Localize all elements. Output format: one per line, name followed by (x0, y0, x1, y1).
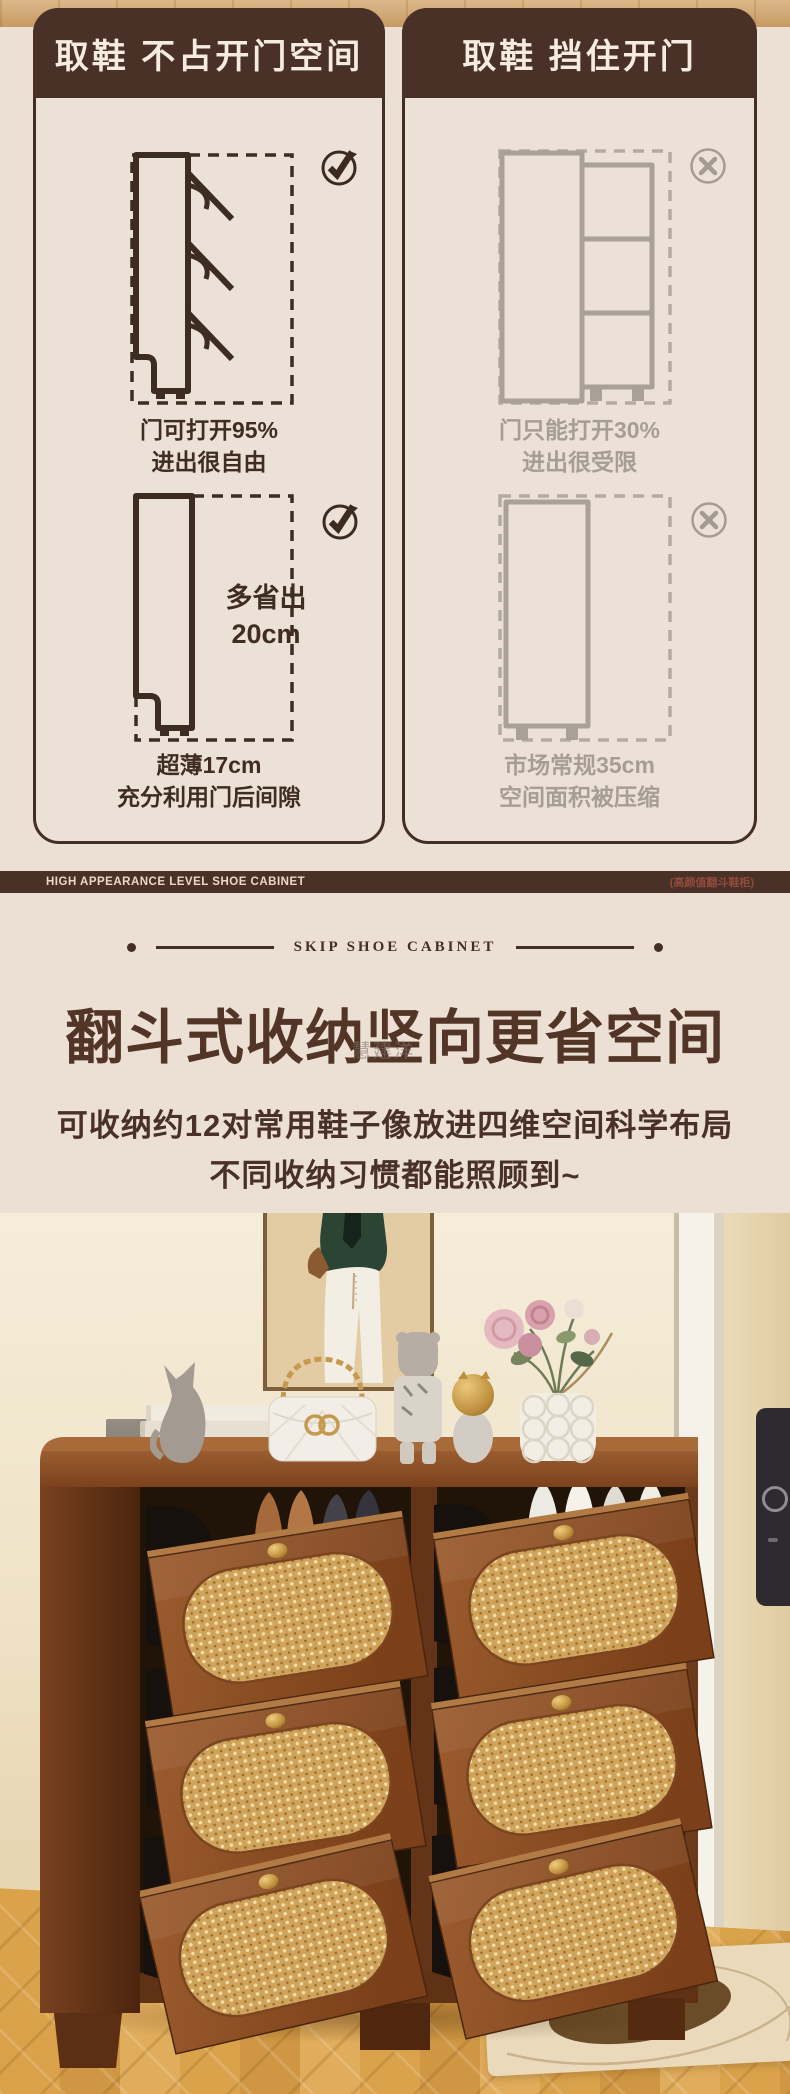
check-icon (318, 498, 362, 542)
caption-market-35cm: 市场常规35cm 空间面积被压缩 (405, 750, 754, 813)
robot-figurine (390, 1330, 446, 1470)
watermark-text: 慧建洋 (352, 1036, 415, 1063)
dot-ornament (654, 943, 663, 952)
line-ornament (156, 946, 274, 949)
subtitle-line1: 可收纳约12对常用鞋子像放进四维空间科学布局 (0, 1100, 790, 1145)
banner-chinese-text: (高颜值翻斗鞋柜) (670, 874, 754, 890)
product-detail-page: 取鞋 不占开门空间 门可打开95% 进出很自由 (0, 0, 790, 2094)
caption-open-95: 门可打开95% 进出很自由 (36, 415, 382, 478)
comparison-panel-good: 取鞋 不占开门空间 门可打开95% 进出很自由 (33, 8, 385, 844)
banner-english-text: HIGH APPEARANCE LEVEL SHOE CABINET (46, 876, 305, 888)
comparison-panel-bad: 取鞋 挡住开门 门只能打开30% 进出很受限 (402, 8, 757, 844)
dot-ornament (127, 943, 136, 952)
subtitle-line2: 不同收纳习惯都能照顾到~ (0, 1150, 790, 1195)
product-photo (0, 1213, 790, 2094)
caption-slim-17cm: 超薄17cm 充分利用门后间隙 (36, 750, 382, 813)
save-20cm-label: 多省出 20cm (186, 581, 346, 652)
cat-figurine (150, 1335, 216, 1470)
panel-bad-title: 取鞋 挡住开门 (462, 29, 696, 78)
handbag (265, 1353, 380, 1470)
line-ornament (516, 946, 634, 949)
caption-open-30: 门只能打开30% 进出很受限 (405, 415, 754, 478)
eyebrow-text: SKIP SHOE CABINET (294, 939, 497, 956)
eyebrow-decoration: SKIP SHOE CABINET (0, 939, 790, 956)
cross-icon (687, 498, 731, 542)
check-icon (317, 144, 361, 188)
shoe-cabinet (30, 1428, 720, 2078)
panel-good-title: 取鞋 不占开门空间 (55, 29, 363, 78)
smart-lock (756, 1408, 790, 1606)
cross-icon (686, 144, 730, 188)
divider-banner: HIGH APPEARANCE LEVEL SHOE CABINET (高颜值翻… (0, 871, 790, 893)
panel-bad-header: 取鞋 挡住开门 (402, 8, 757, 98)
panel-good-header: 取鞋 不占开门空间 (33, 8, 385, 98)
flower-vase (470, 1293, 630, 1470)
